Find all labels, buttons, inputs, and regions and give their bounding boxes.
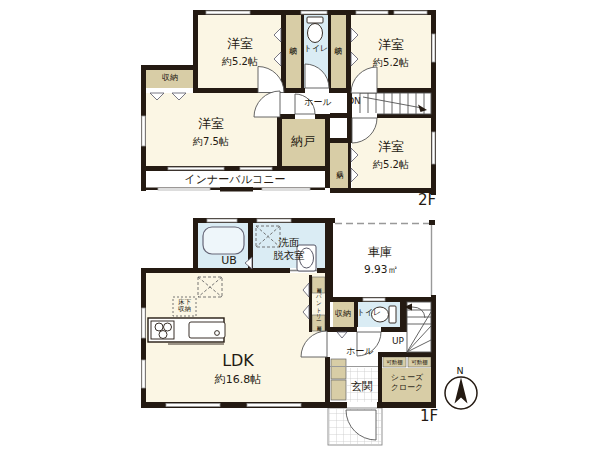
f1-pantry-shelf-bottom-label: 可動棚 xyxy=(316,322,321,324)
compass-north-label: N xyxy=(456,365,463,377)
f1-stairs-up xyxy=(404,302,431,352)
f2-bedroom-nw-name: 洋室 xyxy=(227,36,253,52)
f1-unit-bath-label: UB xyxy=(221,254,237,267)
f1-ldk-size: 約16.8帖 xyxy=(215,373,262,386)
f1-hall-label: ホール xyxy=(346,346,373,357)
f2-bedroom-ne-name: 洋室 xyxy=(378,37,404,53)
f2-stairs-down-label: DN xyxy=(347,96,361,107)
compass-icon xyxy=(445,377,477,409)
f2-closet-w-label: 収納 xyxy=(162,73,178,83)
toilet-icon-2f xyxy=(307,17,323,43)
f1-entrance-label: 玄関 xyxy=(351,380,373,393)
f1-shoe-closet-label: シューズ クローク xyxy=(391,373,424,393)
bathtub-icon xyxy=(203,227,244,254)
f1-stairs-up-label: UP xyxy=(392,336,404,347)
f1-pantry-label: パントリー xyxy=(316,290,322,318)
kitchen-counter-icon xyxy=(148,318,225,344)
f2-inner-balcony-label: インナーバルコニー xyxy=(185,173,286,186)
f2-toilet-label: トイレ xyxy=(304,44,329,54)
f2-closet-ne-label: 収納 xyxy=(334,41,342,42)
f2-bedroom-w-size: 約7.5帖 xyxy=(193,136,229,148)
f1-underfloor-storage-label: 床下 収納 xyxy=(178,299,191,315)
f1-pantry-shelf-top-label: 可動棚 xyxy=(316,284,321,286)
f1-garage-size: 9.93㎡ xyxy=(364,263,398,276)
f1-movable-shelf-2-label: 可動棚 xyxy=(411,359,428,366)
floorplan-svg xyxy=(0,0,600,450)
f1-ldk-name: LDK xyxy=(222,351,254,371)
f2-bedroom-w-name: 洋室 xyxy=(198,116,224,132)
f2-closet-nw-label: 収納 xyxy=(289,41,297,42)
f2-closet-se-label: 収納 xyxy=(336,166,343,167)
f2-bedroom-ne-size: 約5.2帖 xyxy=(373,57,409,69)
f2-storeroom-label: 納戸 xyxy=(291,134,315,149)
f1-floor-label: 1F xyxy=(420,407,438,425)
f1-movable-shelf-1-label: 可動棚 xyxy=(386,359,403,366)
f2-stairs-down xyxy=(360,93,431,114)
f1-toilet-label: トイレ xyxy=(357,308,382,318)
floorplan-canvas: 洋室 約5.2帖 収納 トイレ 収納 洋室 約5.2帖 収納 洋室 約7.5帖 … xyxy=(0,0,600,450)
f2-floor-label: 2F xyxy=(418,191,436,209)
f1-washroom-label: 洗面 脱衣室 xyxy=(273,236,305,262)
f1-garage-name: 車庫 xyxy=(368,245,392,260)
f2-bedroom-nw-size: 約5.2帖 xyxy=(222,56,258,68)
f2-hall-label: ホール xyxy=(304,97,331,108)
f2-bedroom-se-name: 洋室 xyxy=(378,139,404,155)
f2-bedroom-se-size: 約5.2帖 xyxy=(373,159,409,171)
f1-closet-label: 収納 xyxy=(335,309,351,319)
